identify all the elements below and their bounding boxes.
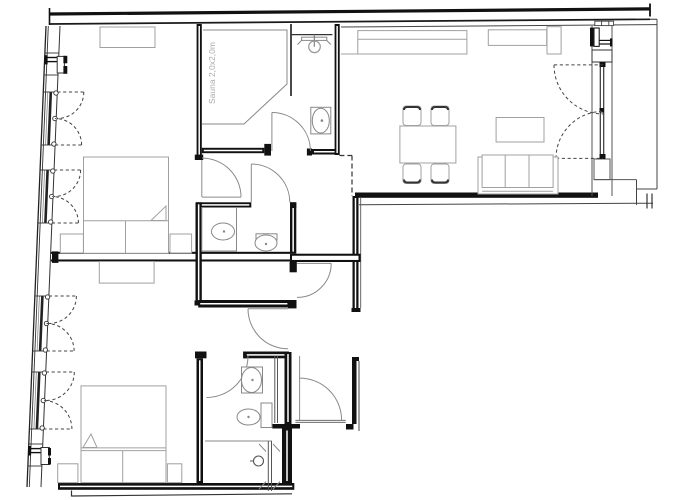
svg-text:Sauna 2,0x2,0m: Sauna 2,0x2,0m (207, 42, 217, 104)
